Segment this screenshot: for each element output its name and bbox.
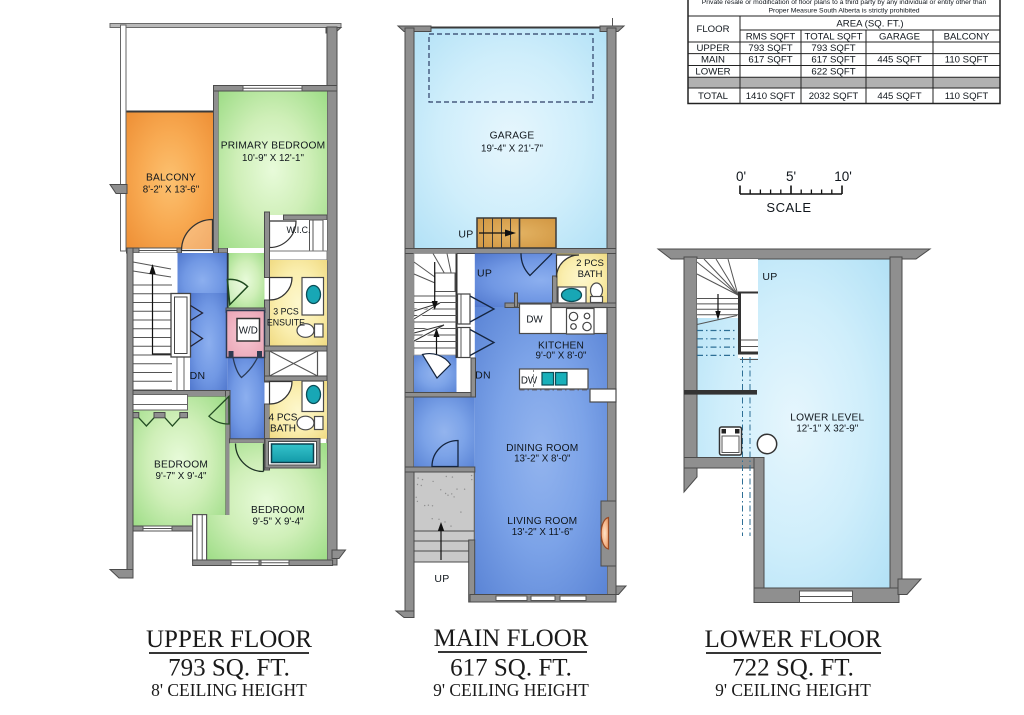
svg-text:Private resale or modificatio: Private resale or modification of floor … — [702, 0, 987, 6]
svg-text:13'-2" X 11'-6": 13'-2" X 11'-6" — [512, 527, 574, 538]
svg-text:ENSUITE: ENSUITE — [267, 318, 305, 328]
svg-text:793 SQFT: 793 SQFT — [811, 43, 855, 54]
svg-text:BATH: BATH — [270, 424, 296, 435]
svg-text:UP: UP — [477, 268, 492, 280]
svg-text:DN: DN — [475, 370, 491, 382]
svg-text:3 PCS: 3 PCS — [273, 307, 299, 317]
svg-text:UP: UP — [458, 229, 473, 241]
svg-text:Proper Measure South Alberta i: Proper Measure South Alberta is strictly… — [768, 8, 919, 15]
svg-text:9' CEILING HEIGHT: 9' CEILING HEIGHT — [433, 680, 589, 700]
svg-text:8'-2" X 13'-6": 8'-2" X 13'-6" — [143, 185, 200, 196]
svg-text:9'-7" X 9'-4": 9'-7" X 9'-4" — [156, 471, 208, 482]
svg-text:BEDROOM: BEDROOM — [154, 460, 208, 471]
svg-text:DW: DW — [526, 315, 543, 326]
svg-text:UPPER: UPPER — [696, 43, 729, 54]
svg-text:W/D: W/D — [239, 326, 258, 337]
svg-text:19'-4" X 21'-7": 19'-4" X 21'-7" — [481, 144, 543, 155]
svg-text:9' CEILING HEIGHT: 9' CEILING HEIGHT — [715, 680, 871, 700]
svg-text:445 SQFT: 445 SQFT — [877, 55, 921, 66]
svg-text:110 SQFT: 110 SQFT — [945, 91, 989, 102]
svg-text:110 SQFT: 110 SQFT — [945, 55, 989, 66]
svg-text:10'-9" X 12'-1": 10'-9" X 12'-1" — [242, 153, 304, 164]
svg-text:622 SQFT: 622 SQFT — [811, 67, 855, 78]
svg-text:SCALE: SCALE — [766, 200, 811, 215]
svg-text:LIVING ROOM: LIVING ROOM — [507, 516, 577, 527]
svg-text:GARAGE: GARAGE — [879, 32, 920, 43]
svg-text:617 SQFT: 617 SQFT — [811, 55, 855, 66]
svg-text:2 PCS: 2 PCS — [576, 258, 604, 269]
svg-text:UPPER FLOOR: UPPER FLOOR — [146, 626, 312, 653]
svg-text:GARAGE: GARAGE — [490, 131, 535, 142]
svg-text:793 SQ. FT.: 793 SQ. FT. — [168, 655, 290, 682]
svg-text:722 SQ. FT.: 722 SQ. FT. — [732, 655, 854, 682]
svg-text:UP: UP — [762, 271, 777, 283]
svg-text:12'-1" X 32'-9": 12'-1" X 32'-9" — [796, 424, 858, 435]
svg-text:13'-2" X 8'-0": 13'-2" X 8'-0" — [514, 454, 571, 465]
svg-text:9'-0" X 8'-0": 9'-0" X 8'-0" — [536, 351, 588, 362]
svg-text:BALCONY: BALCONY — [944, 32, 990, 43]
svg-text:617 SQ. FT.: 617 SQ. FT. — [450, 655, 572, 682]
svg-text:617 SQFT: 617 SQFT — [748, 55, 792, 66]
svg-text:445 SQFT: 445 SQFT — [877, 91, 921, 102]
svg-text:DN: DN — [190, 370, 206, 382]
svg-text:TOTAL: TOTAL — [698, 91, 729, 102]
svg-text:793 SQFT: 793 SQFT — [748, 43, 792, 54]
svg-text:DW: DW — [521, 376, 538, 387]
svg-text:1410 SQFT: 1410 SQFT — [746, 91, 796, 102]
svg-text:BEDROOM: BEDROOM — [251, 505, 305, 516]
svg-text:0': 0' — [736, 169, 746, 184]
svg-text:AREA (SQ. FT.): AREA (SQ. FT.) — [836, 19, 903, 30]
svg-text:2032 SQFT: 2032 SQFT — [809, 91, 859, 102]
svg-text:LOWER LEVEL: LOWER LEVEL — [790, 413, 864, 424]
svg-text:MAIN: MAIN — [701, 55, 725, 66]
svg-text:8' CEILING HEIGHT: 8' CEILING HEIGHT — [151, 680, 307, 700]
svg-text:MAIN FLOOR: MAIN FLOOR — [434, 625, 589, 652]
svg-text:FLOOR: FLOOR — [696, 24, 729, 35]
svg-text:LOWER FLOOR: LOWER FLOOR — [704, 626, 881, 653]
svg-text:RMS SQFT: RMS SQFT — [746, 32, 796, 43]
svg-text:9'-5" X 9'-4": 9'-5" X 9'-4" — [253, 517, 305, 528]
svg-text:DINING ROOM: DINING ROOM — [506, 443, 578, 454]
svg-text:UP: UP — [434, 573, 449, 585]
svg-text:LOWER: LOWER — [695, 67, 730, 78]
svg-text:W.I.C.: W.I.C. — [287, 225, 311, 235]
svg-text:PRIMARY BEDROOM: PRIMARY BEDROOM — [221, 141, 326, 152]
svg-text:BATH: BATH — [578, 269, 603, 280]
svg-text:4 PCS: 4 PCS — [269, 413, 298, 424]
svg-text:TOTAL SQFT: TOTAL SQFT — [805, 32, 863, 43]
svg-text:BALCONY: BALCONY — [146, 173, 196, 184]
svg-text:10': 10' — [834, 169, 852, 184]
svg-text:5': 5' — [786, 169, 796, 184]
